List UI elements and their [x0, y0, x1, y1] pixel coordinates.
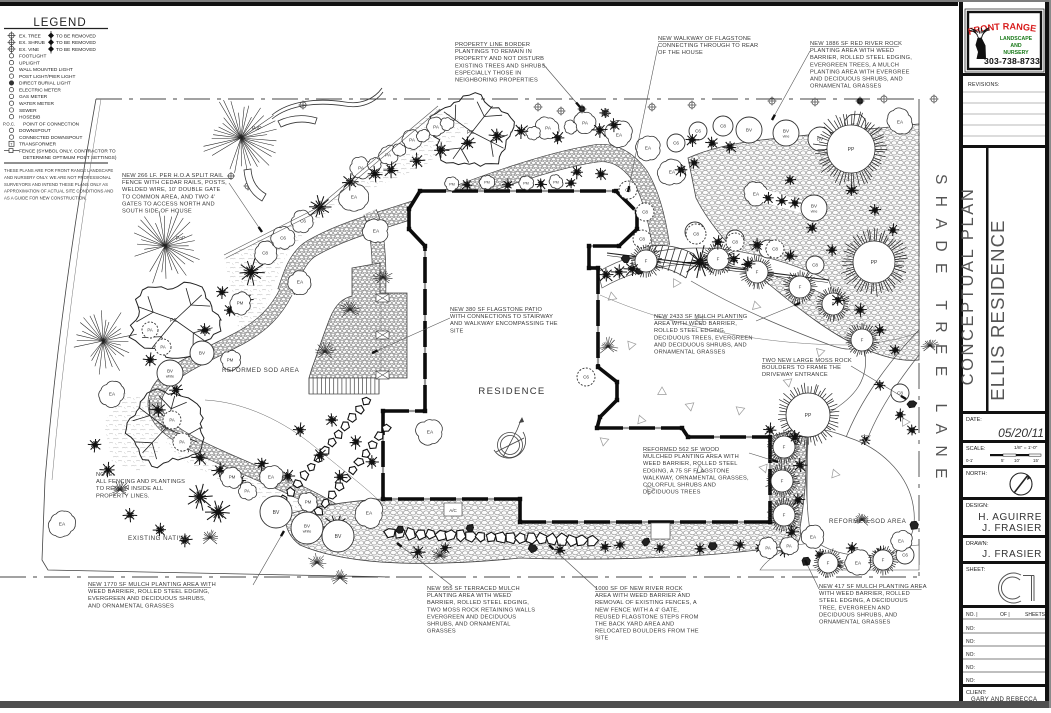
svg-text:EVERGREEN AND DECIDUOUS SHRUBS: EVERGREEN AND DECIDUOUS SHRUBS, [88, 596, 206, 602]
svg-text:C6: C6 [300, 219, 306, 224]
svg-text:BV: BV [335, 534, 342, 540]
svg-text:EA: EA [427, 430, 434, 436]
svg-text:PROPERTY LINE BORDER: PROPERTY LINE BORDER [455, 42, 530, 48]
svg-text:EA: EA [297, 280, 304, 286]
svg-text:C8: C8 [772, 247, 778, 252]
svg-text:C6: C6 [583, 375, 589, 380]
svg-text:LANDSCAPE: LANDSCAPE [1000, 36, 1033, 42]
svg-text:1000 SF OF NEW RIVER ROCK: 1000 SF OF NEW RIVER ROCK [595, 586, 683, 592]
svg-text:AREA WITH WEED BARRIER,: AREA WITH WEED BARRIER, [654, 321, 737, 327]
svg-text:TO BE REMOVED: TO BE REMOVED [56, 40, 96, 46]
svg-text:ELECTRIC METER: ELECTRIC METER [19, 88, 61, 94]
svg-text:PP: PP [848, 147, 855, 153]
svg-text:15': 15' [1033, 458, 1039, 463]
svg-text:SCALE:: SCALE: [966, 446, 986, 452]
svg-text:PC: PC [467, 130, 474, 136]
svg-text:NO:: NO: [966, 678, 975, 684]
svg-text:BARRIER, ROLLED STEEL EDGING,: BARRIER, ROLLED STEEL EDGING, [810, 55, 912, 61]
svg-text:PP: PP [871, 260, 878, 266]
svg-text:REUSED FLAGSTONE STEPS FROM: REUSED FLAGSTONE STEPS FROM [595, 614, 699, 620]
svg-text:HOSEBIB: HOSEBIB [19, 115, 40, 121]
svg-text:AND ORNAMENTAL GRASSES: AND ORNAMENTAL GRASSES [88, 603, 174, 609]
svg-text:EA: EA [366, 511, 373, 517]
svg-text:WEED BARRIER, ROLLED STEEL EDG: WEED BARRIER, ROLLED STEEL EDGING, [88, 589, 210, 595]
svg-text:PA: PA [409, 138, 416, 143]
svg-text:NOTE:: NOTE: [96, 472, 115, 478]
svg-text:EVERGREEN TREES, A MULCH: EVERGREEN TREES, A MULCH [810, 62, 899, 68]
svg-text:NEW 266 LF. PER H.O.A SPLIT RA: NEW 266 LF. PER H.O.A SPLIT RAIL [122, 173, 223, 179]
svg-text:white: white [166, 374, 174, 378]
svg-text:J. FRASIER: J. FRASIER [982, 523, 1042, 534]
svg-text:ORNAMENTAL GRASSES: ORNAMENTAL GRASSES [654, 350, 726, 356]
svg-text:WALKWAY, ORNAMENTAL GRASSES,: WALKWAY, ORNAMENTAL GRASSES, [643, 475, 749, 481]
svg-text:SOUTH SIDE OF HOUSE: SOUTH SIDE OF HOUSE [122, 209, 192, 215]
svg-text:C8: C8 [732, 240, 738, 245]
svg-text:NO:: NO: [966, 626, 975, 632]
svg-text:NO:: NO: [966, 639, 975, 645]
svg-text:DETERMINE OPTIMUM POST SETTING: DETERMINE OPTIMUM POST SETTINGS) [23, 155, 117, 161]
svg-text:AS A GUIDE FOR NEW CONSTRUCTIO: AS A GUIDE FOR NEW CONSTRUCTION. [4, 196, 87, 201]
svg-text:LEGEND: LEGEND [33, 17, 86, 29]
svg-text:F: F [882, 558, 885, 563]
svg-text:vine: vine [811, 210, 818, 214]
svg-text:REFORMED SOD AREA: REFORMED SOD AREA [222, 367, 300, 374]
svg-text:C8: C8 [639, 237, 645, 242]
svg-text:STEEL EDGING, A DECIDUOUS: STEEL EDGING, A DECIDUOUS [819, 598, 908, 604]
svg-text:J. FRASIER: J. FRASIER [982, 549, 1042, 560]
svg-text:CONNECTED DOWNSPOUT: CONNECTED DOWNSPOUT [19, 135, 82, 141]
svg-text:PA: PA [160, 345, 165, 350]
svg-text:NO:: NO: [966, 665, 975, 671]
svg-text:AND: AND [1010, 43, 1021, 49]
svg-text:THE BACK YARD AREA AND: THE BACK YARD AREA AND [595, 622, 674, 628]
svg-text:NORTH:: NORTH: [966, 471, 987, 477]
svg-text:GAS METER: GAS METER [19, 94, 48, 100]
svg-text:F: F [717, 257, 720, 262]
svg-text:EA: EA [669, 170, 676, 175]
svg-text:COLORFUL SHRUBS AND: COLORFUL SHRUBS AND [643, 483, 716, 489]
svg-text:WITH WEED BARRIER, ROLLED: WITH WEED BARRIER, ROLLED [819, 591, 910, 597]
svg-text:PLANTINGS TO REMAIN IN: PLANTINGS TO REMAIN IN [455, 49, 532, 55]
svg-text:TO COMMON AREA, AND TWO 4': TO COMMON AREA, AND TWO 4' [122, 194, 215, 200]
svg-text:white: white [303, 530, 312, 534]
svg-text:303-738-8733: 303-738-8733 [984, 56, 1040, 66]
svg-text:NO:: NO: [966, 652, 975, 658]
svg-text:F: F [781, 479, 784, 484]
svg-text:AND WALKWAY ENCOMPASSING THE: AND WALKWAY ENCOMPASSING THE [450, 321, 558, 327]
svg-text:F: F [783, 445, 786, 450]
svg-text:REMOVAL OF EXISTING FENCES, A: REMOVAL OF EXISTING FENCES, A [595, 600, 697, 606]
svg-text:DECIDUOUS TREES, EVERGREEN: DECIDUOUS TREES, EVERGREEN [654, 335, 753, 341]
svg-text:AND DECIDUOUS SHRUBS, AND: AND DECIDUOUS SHRUBS, AND [810, 77, 903, 83]
svg-text:PM: PM [523, 181, 529, 185]
svg-text:PA: PA [147, 328, 152, 333]
svg-text:BV: BV [746, 128, 753, 133]
svg-text:PC: PC [170, 318, 177, 324]
svg-text:WITH CONNECTIONS TO STAIRWAY: WITH CONNECTIONS TO STAIRWAY [450, 314, 553, 320]
svg-text:NO. |: NO. | [966, 612, 978, 618]
svg-text:POINT OF CONNECTION: POINT OF CONNECTION [23, 121, 80, 127]
svg-text:NEW FENCE WITH A 4' GATE,: NEW FENCE WITH A 4' GATE, [595, 607, 679, 613]
svg-text:EX. SHRUB: EX. SHRUB [19, 40, 45, 46]
svg-text:PM: PM [229, 475, 236, 480]
svg-text:NEW 1886 SF RED RIVER ROCK: NEW 1886 SF RED RIVER ROCK [810, 41, 902, 47]
svg-text:OF |: OF | [1000, 612, 1010, 618]
svg-text:TO BE REMOVED: TO BE REMOVED [56, 33, 96, 39]
svg-text:EXISTING TREES AND SHRUBS.: EXISTING TREES AND SHRUBS. [455, 63, 548, 69]
svg-text:vine: vine [783, 135, 790, 139]
svg-text:PLANTING AREA WITH WEED: PLANTING AREA WITH WEED [810, 48, 894, 54]
svg-text:PM: PM [449, 182, 455, 186]
svg-text:NEW 380 SF FLAGSTONE PATIO: NEW 380 SF FLAGSTONE PATIO [450, 307, 542, 313]
svg-text:EX. TREE: EX. TREE [19, 33, 41, 39]
svg-text:WATER METER: WATER METER [19, 101, 54, 107]
svg-text:PoP: PoP [252, 126, 262, 132]
svg-text:SHRUBS, AND ORNAMENTAL: SHRUBS, AND ORNAMENTAL [427, 622, 511, 628]
svg-text:EXISTING NATIVE: EXISTING NATIVE [128, 535, 188, 542]
svg-text:C8: C8 [897, 391, 903, 396]
svg-text:A/C: A/C [449, 508, 457, 513]
svg-text:0-1': 0-1' [966, 458, 973, 463]
svg-text:RELOCATED BOULDERS FROM THE: RELOCATED BOULDERS FROM THE [595, 629, 699, 635]
svg-text:TO BE REMOVED: TO BE REMOVED [56, 47, 96, 53]
svg-text:EA: EA [898, 539, 904, 544]
svg-text:F: F [799, 285, 802, 290]
svg-text:H. AGUIRRE: H. AGUIRRE [978, 512, 1042, 523]
svg-text:ESPECIALLY THOSE IN: ESPECIALLY THOSE IN [455, 70, 521, 76]
svg-text:SHEET:: SHEET: [966, 567, 986, 573]
svg-text:TWO MOSS ROCK RETAINING WALLS: TWO MOSS ROCK RETAINING WALLS [427, 607, 535, 613]
svg-text:F: F [783, 513, 786, 518]
svg-text:EA: EA [373, 229, 380, 235]
svg-text:C8: C8 [642, 210, 648, 215]
svg-text:PA: PA [385, 153, 392, 158]
svg-text:NEIGHBORING PROPERTIES: NEIGHBORING PROPERTIES [455, 78, 538, 84]
svg-text:F: F [861, 338, 864, 343]
svg-text:PA: PA [786, 544, 791, 549]
svg-text:PLANTING AREA WITH EVERGREE: PLANTING AREA WITH EVERGREE [810, 69, 910, 75]
svg-text:CONCEPTUAL PLAN: CONCEPTUAL PLAN [959, 187, 977, 386]
svg-text:TRANSFORMER: TRANSFORMER [19, 142, 57, 148]
svg-text:P.O.C.: P.O.C. [3, 121, 15, 126]
svg-text:PoP: PoP [176, 236, 186, 242]
svg-text:1/8" = 1'-0": 1/8" = 1'-0" [1014, 445, 1038, 451]
svg-text:AND DECIDUOUS SHRUBS, AND: AND DECIDUOUS SHRUBS, AND [654, 342, 747, 348]
svg-text:DRAWN:: DRAWN: [966, 541, 989, 547]
svg-text:ROLLED STEEL EDGING,: ROLLED STEEL EDGING, [654, 328, 726, 334]
svg-text:PA: PA [765, 546, 770, 551]
svg-text:C6: C6 [902, 553, 908, 558]
svg-text:C6: C6 [280, 236, 286, 241]
svg-text:BV: BV [304, 524, 311, 529]
svg-text:PM: PM [305, 500, 312, 505]
svg-text:DOWNSPOUT: DOWNSPOUT [19, 128, 51, 134]
svg-text:TREE, EVERGREEN AND: TREE, EVERGREEN AND [819, 605, 890, 611]
svg-text:REFORMED SOD AREA: REFORMED SOD AREA [829, 518, 907, 525]
svg-text:EA: EA [109, 392, 116, 397]
svg-text:MULCHED PLANTING AREA WITH: MULCHED PLANTING AREA WITH [643, 454, 739, 460]
svg-text:PM: PM [553, 180, 559, 184]
svg-text:BOULDERS TO FRAME THE: BOULDERS TO FRAME THE [762, 365, 841, 371]
svg-text:PA: PA [179, 440, 184, 445]
svg-text:C8: C8 [262, 251, 268, 256]
svg-text:CONNECTING THROUGH TO REAR: CONNECTING THROUGH TO REAR [658, 43, 758, 49]
svg-text:C8: C8 [720, 124, 726, 129]
svg-text:10': 10' [1014, 458, 1020, 463]
svg-text:PP: PP [805, 413, 812, 419]
svg-text:C6: C6 [695, 129, 701, 134]
svg-text:GATES TO ACCESS NORTH AND: GATES TO ACCESS NORTH AND [122, 201, 215, 207]
svg-text:WELDED WIRE, 10' DOUBLE GATE: WELDED WIRE, 10' DOUBLE GATE [122, 187, 221, 193]
svg-text:EA: EA [351, 195, 358, 200]
svg-text:EA: EA [268, 475, 275, 480]
svg-text:EVERGREEN AND DECIDUOUS: EVERGREEN AND DECIDUOUS [427, 614, 516, 620]
svg-text:UPLIGHT: UPLIGHT [19, 60, 40, 66]
svg-text:PM: PM [484, 180, 490, 184]
svg-text:GRASSES: GRASSES [427, 629, 456, 635]
svg-text:ELLIS RESIDENCE: ELLIS RESIDENCE [987, 219, 1008, 400]
svg-text:SEWER: SEWER [19, 108, 37, 114]
svg-text:PA: PA [545, 126, 552, 131]
svg-text:THESE PLANS ARE FOR FRONT RANG: THESE PLANS ARE FOR FRONT RANGE LANDSCAP… [4, 168, 113, 173]
svg-text:5': 5' [1001, 458, 1004, 463]
svg-text:F: F [756, 270, 759, 275]
svg-text:EA: EA [753, 192, 760, 197]
svg-text:POST LIGHT/PIER LIGHT: POST LIGHT/PIER LIGHT [19, 74, 75, 80]
svg-text:CLIENT:: CLIENT: [966, 690, 987, 696]
svg-text:TWO NEW LARGE MOSS ROCK: TWO NEW LARGE MOSS ROCK [762, 358, 852, 364]
svg-text:TO REMAIN INSIDE ALL: TO REMAIN INSIDE ALL [96, 486, 163, 492]
svg-text:SHADE TREE LANE: SHADE TREE LANE [932, 174, 949, 490]
svg-text:NEW 2433 SF MULCH PLANTING: NEW 2433 SF MULCH PLANTING [654, 314, 747, 320]
svg-text:SITE: SITE [450, 328, 463, 334]
svg-text:FENCE WITH CEDAR RAILS, POSTS,: FENCE WITH CEDAR RAILS, POSTS, [122, 180, 227, 186]
svg-text:BV: BV [783, 129, 790, 134]
svg-text:DATE:: DATE: [966, 417, 982, 423]
svg-text:DECIDUOUS SHRUBS, AND: DECIDUOUS SHRUBS, AND [819, 612, 897, 618]
svg-text:BV: BV [273, 510, 280, 516]
svg-text:NEW 1770 SF MULCH PLANTING ARE: NEW 1770 SF MULCH PLANTING AREA WITH [88, 582, 216, 588]
svg-text:APPROXIMATION OF ACTUAL SITE C: APPROXIMATION OF ACTUAL SITE CONDITIONS … [4, 189, 113, 194]
svg-text:SITE: SITE [595, 636, 608, 642]
svg-text:EA: EA [645, 146, 652, 151]
svg-text:RESIDENCE: RESIDENCE [478, 386, 545, 397]
svg-text:DRIVEWAY ENTRANCE: DRIVEWAY ENTRANCE [762, 372, 828, 378]
svg-text:OF THE HOUSE: OF THE HOUSE [658, 50, 703, 56]
svg-text:AREA WITH WEED BARRIER AND: AREA WITH WEED BARRIER AND [595, 593, 690, 599]
svg-text:NEW 955 SF TERRACED MULCH: NEW 955 SF TERRACED MULCH [427, 586, 520, 592]
svg-text:C8: C8 [812, 263, 818, 268]
svg-text:F: F [645, 259, 648, 264]
svg-text:ORNAMENTAL GRASSES: ORNAMENTAL GRASSES [819, 620, 891, 626]
svg-text:PA: PA [433, 125, 440, 130]
svg-text:BV: BV [167, 369, 173, 374]
svg-text:NEW 417 SF MULCH PLANTING AREA: NEW 417 SF MULCH PLANTING AREA [819, 584, 927, 590]
svg-text:ALL FENCING AND PLANTINGS: ALL FENCING AND PLANTINGS [96, 479, 185, 485]
svg-text:REFORMED 562 SF WOOD: REFORMED 562 SF WOOD [643, 447, 719, 453]
svg-text:REVISIONS:: REVISIONS: [968, 82, 1000, 88]
svg-text:SHEETS: SHEETS [1025, 612, 1046, 618]
svg-text:C8: C8 [693, 232, 699, 237]
svg-text:EA: EA [855, 561, 862, 566]
svg-text:WEED BARRIER, ROLLED STEEL: WEED BARRIER, ROLLED STEEL [643, 461, 738, 467]
svg-text:PA: PA [169, 418, 174, 423]
svg-text:PM: PM [237, 301, 244, 306]
svg-text:BARRIER, ROLLED STEEL EDGING,: BARRIER, ROLLED STEEL EDGING, [427, 600, 529, 606]
svg-text:FOOTLIGHT: FOOTLIGHT [19, 54, 47, 60]
svg-text:ORNAMENTAL GRASSES: ORNAMENTAL GRASSES [810, 84, 882, 90]
svg-text:DESIGN:: DESIGN: [966, 503, 989, 509]
svg-text:EDGING, A 75 SF FLAGSTONE: EDGING, A 75 SF FLAGSTONE [643, 468, 729, 474]
svg-text:PROPERTY AND NOT DISTURB: PROPERTY AND NOT DISTURB [455, 56, 544, 62]
svg-text:BV: BV [811, 204, 818, 209]
svg-text:DIRECT BURIAL LIGHT: DIRECT BURIAL LIGHT [19, 81, 71, 87]
svg-text:EA: EA [616, 133, 623, 138]
svg-text:EA: EA [897, 120, 904, 125]
svg-text:EX. VINE: EX. VINE [19, 47, 39, 53]
svg-text:F: F [827, 561, 830, 566]
svg-text:PLANTING AREA WITH WEED: PLANTING AREA WITH WEED [427, 593, 511, 599]
svg-text:AND NURSERY ONLY. WE ARE NOT P: AND NURSERY ONLY. WE ARE NOT PROFESSIONA… [4, 175, 112, 180]
svg-text:PA: PA [358, 166, 365, 171]
svg-text:FENCE (SYMBOL ONLY, CONTRACTOR: FENCE (SYMBOL ONLY, CONTRACTOR TO [19, 148, 116, 154]
svg-text:SURVEYORS AND INTEND THESE PLA: SURVEYORS AND INTEND THESE PLANS ONLY AS [4, 182, 108, 187]
svg-text:05/20/11: 05/20/11 [998, 426, 1044, 440]
svg-text:PA: PA [582, 121, 589, 126]
svg-text:C6: C6 [673, 141, 679, 146]
svg-text:PROPERTY LINES.: PROPERTY LINES. [96, 493, 150, 499]
svg-text:NEW WALKWAY OF FLAGSTONE: NEW WALKWAY OF FLAGSTONE [658, 36, 751, 42]
svg-text:BV: BV [199, 351, 206, 356]
svg-text:EA: EA [810, 535, 817, 540]
svg-text:WALL MOUNTED LIGHT: WALL MOUNTED LIGHT [19, 67, 73, 73]
svg-text:DECIDUOUS TREES: DECIDUOUS TREES [643, 490, 701, 496]
svg-text:EA: EA [59, 522, 66, 528]
svg-text:PA: PA [244, 489, 249, 494]
svg-text:PM: PM [227, 358, 234, 363]
